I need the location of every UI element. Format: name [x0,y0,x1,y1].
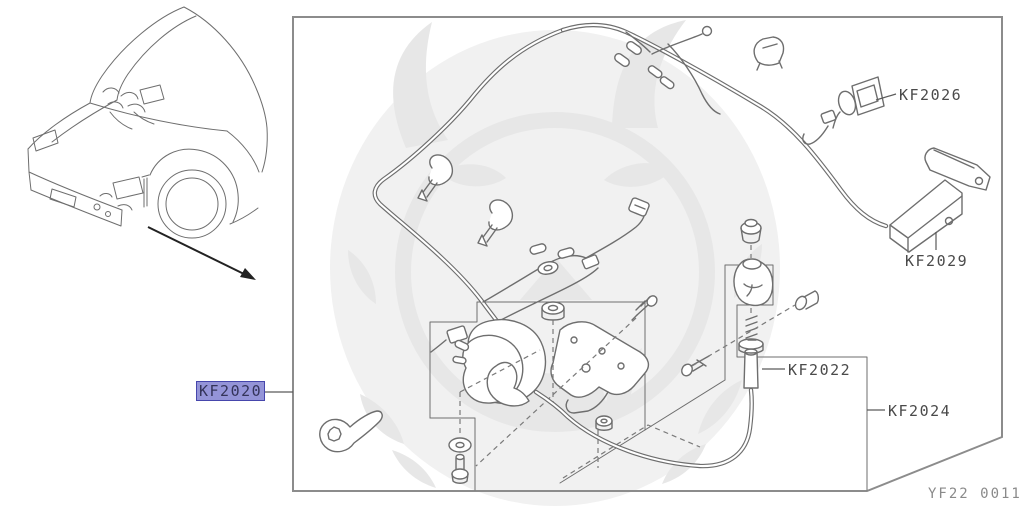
module-drawing-kf2029[interactable] [890,148,990,252]
part-label-kf2029[interactable]: KF2029 [905,252,968,270]
wrench-bracket-drawing [320,411,382,452]
part-label-kf2026[interactable]: KF2026 [899,86,962,104]
parts-diagram-page: KF2020 KF2026 KF2029 KF2022 KF2024 YF22 … [0,0,1024,506]
part-label-kf2022[interactable]: KF2022 [788,361,851,379]
diagram-line-art [0,0,1024,506]
part-label-kf2020[interactable]: KF2020 [196,381,265,401]
switch-drawing-kf2026[interactable] [803,77,884,144]
car-location-thumbnail [28,7,267,238]
part-label-kf2024[interactable]: KF2024 [888,402,951,420]
diagram-sheet-code: YF22 0011 [928,486,1022,502]
location-arrow [148,227,256,280]
